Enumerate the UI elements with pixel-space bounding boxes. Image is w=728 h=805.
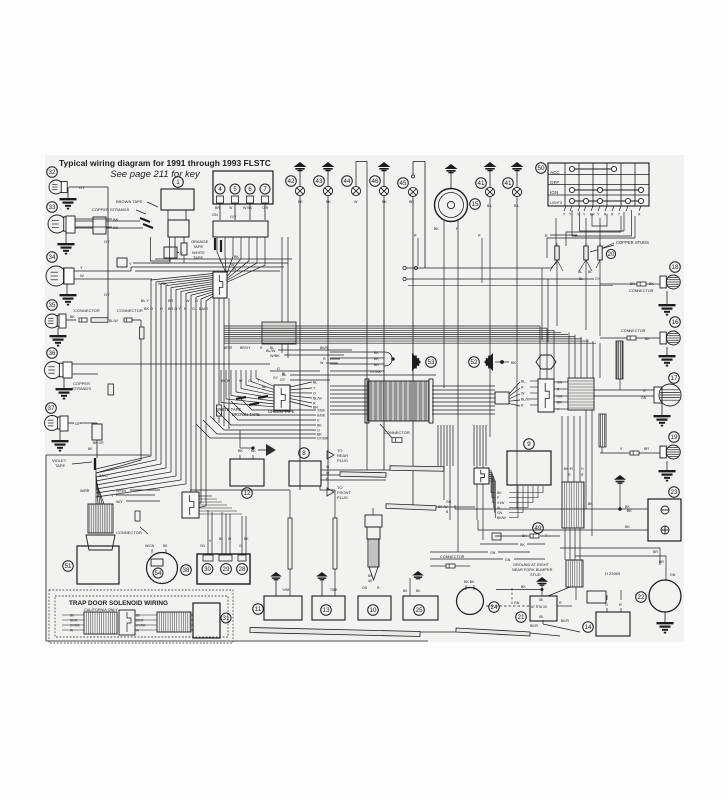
svg-text:PLUG: PLUG [337, 495, 348, 500]
svg-text:BK: BK [374, 357, 379, 361]
svg-text:44: 44 [344, 178, 351, 185]
svg-text:BK BK: BK BK [464, 580, 475, 584]
svg-text:W: W [326, 465, 330, 469]
svg-text:GN: GN [505, 558, 511, 562]
svg-text:1: 1 [176, 179, 180, 186]
svg-text:CONNECTOR: CONNECTOR [440, 555, 465, 559]
svg-text:BK: BK [238, 449, 243, 453]
svg-text:16: 16 [672, 319, 679, 326]
svg-text:W: W [186, 299, 190, 303]
svg-text:O: O [581, 467, 584, 471]
svg-text:GN: GN [641, 396, 647, 400]
svg-text:BR: BR [215, 206, 220, 210]
svg-text:BL: BL [282, 372, 286, 376]
svg-text:BL: BL [578, 270, 582, 274]
svg-text:STUD: STUD [530, 572, 541, 577]
svg-text:STRANDS: STRANDS [72, 386, 91, 391]
svg-text:R: R [184, 307, 187, 311]
svg-text:W/BR: W/BR [80, 489, 90, 493]
svg-text:19: 19 [671, 434, 678, 441]
svg-text:GY: GY [273, 376, 279, 380]
svg-text:O: O [195, 299, 198, 303]
svg-text:BA/R: BA/R [199, 307, 208, 311]
svg-text:BR: BR [644, 447, 649, 451]
svg-text:GN: GN [497, 511, 503, 515]
svg-text:R: R [521, 386, 524, 390]
svg-text:O R: O R [262, 206, 269, 210]
svg-text:BR O Y: BR O Y [168, 307, 181, 311]
svg-text:BK: BK [645, 337, 650, 341]
svg-text:BR: BR [409, 200, 414, 204]
svg-text:O: O [313, 392, 316, 396]
svg-text:O: O [277, 367, 280, 371]
svg-text:86: 86 [539, 615, 543, 619]
svg-text:O: O [248, 379, 251, 383]
svg-text:CALIFORNIA ONLY: CALIFORNIA ONLY [84, 608, 118, 612]
svg-text:Y/BK: Y/BK [282, 588, 290, 592]
svg-text:TRAP DOOR SOLENOID WIRING: TRAP DOOR SOLENOID WIRING [69, 600, 168, 607]
svg-text:12: 12 [244, 490, 251, 497]
svg-text:54: 54 [155, 570, 162, 577]
svg-text:O: O [605, 603, 608, 607]
svg-text:BK: BK [88, 447, 93, 451]
svg-text:GN: GN [670, 573, 676, 577]
svg-text:R: R [575, 234, 578, 238]
svg-text:85: 85 [539, 598, 543, 602]
svg-text:W: W [233, 267, 237, 271]
svg-text:GN: GN [200, 544, 205, 548]
svg-text:K/BK: K/BK [317, 414, 326, 418]
svg-text:35: 35 [49, 302, 56, 309]
svg-text:BK: BK [326, 200, 331, 204]
svg-text:46: 46 [372, 178, 379, 185]
svg-text:BK: BK [70, 315, 75, 319]
svg-text:BL: BL [588, 270, 592, 274]
svg-text:Typical wiring diagram for 199: Typical wiring diagram for 1991 through … [59, 158, 271, 168]
svg-text:COPPER STUDS: COPPER STUDS [616, 240, 649, 245]
svg-text:BR/R: BR/R [224, 346, 233, 350]
svg-text:BK: BK [434, 227, 439, 231]
svg-text:37: 37 [48, 405, 55, 412]
svg-text:CONNECTOR: CONNECTOR [74, 308, 100, 313]
svg-text:GN: GN [557, 381, 563, 385]
svg-text:24: 24 [491, 604, 498, 611]
svg-text:50: 50 [538, 165, 545, 172]
svg-text:BL/W: BL/W [109, 319, 118, 323]
svg-text:R: R [521, 404, 524, 408]
svg-text:W: W [521, 392, 525, 396]
svg-text:GN: GN [212, 213, 218, 217]
svg-text:R: R [323, 357, 326, 361]
svg-text:10: 10 [370, 607, 377, 614]
svg-text:W/BK: W/BK [270, 354, 280, 358]
svg-text:T/BK: T/BK [317, 409, 326, 413]
svg-text:R: R [559, 601, 562, 605]
svg-text:GY: GY [104, 239, 110, 244]
svg-text:42: 42 [288, 178, 295, 185]
svg-text:GY: GY [79, 185, 85, 190]
svg-text:11: 11 [255, 606, 262, 613]
svg-text:GY/BK: GY/BK [317, 437, 329, 441]
svg-text:O: O [192, 307, 195, 311]
svg-text:BK: BK [403, 589, 408, 593]
svg-text:BA/O: BA/O [99, 474, 108, 478]
svg-text:15: 15 [472, 201, 479, 208]
svg-text:30: 30 [204, 566, 211, 573]
svg-text:R: R [414, 234, 417, 238]
svg-text:38: 38 [183, 567, 190, 574]
svg-text:GP: GP [75, 421, 81, 426]
svg-text:BK: BK [588, 502, 593, 506]
svg-text:20: 20 [608, 251, 615, 258]
svg-text:BK: BK [317, 424, 322, 428]
svg-text:W BK: W BK [243, 206, 253, 210]
svg-text:See page 211 for key: See page 211 for key [110, 169, 201, 180]
svg-text:BL Y: BL Y [141, 299, 149, 303]
svg-text:BK/R: BK/R [561, 619, 569, 623]
svg-text:17: 17 [671, 375, 678, 382]
svg-text:45: 45 [400, 180, 407, 187]
svg-text:T: T [563, 213, 565, 217]
svg-text:51: 51 [65, 563, 72, 570]
svg-text:BK: BK [497, 491, 502, 495]
svg-text:BR: BR [557, 401, 562, 405]
svg-text:BL: BL [219, 537, 223, 541]
svg-text:/W: /W [368, 579, 372, 583]
svg-text:36: 36 [49, 350, 56, 357]
svg-text:BK/W: BK/W [497, 516, 506, 520]
svg-text:R: R [478, 234, 481, 238]
svg-text:BK: BK [416, 589, 421, 593]
svg-text:BR/GY: BR/GY [240, 346, 251, 350]
svg-text:BR: BR [590, 213, 595, 217]
svg-text:GY: GY [280, 378, 286, 382]
svg-text:H 23969: H 23969 [605, 571, 621, 576]
svg-text:W/Y: W/Y [116, 500, 123, 504]
svg-text:TAPE: TAPE [55, 463, 65, 468]
svg-text:CONNECTOR: CONNECTOR [117, 308, 143, 313]
svg-text:BK: BK [163, 544, 168, 548]
svg-text:BK: BK [625, 525, 630, 529]
svg-text:W/GN: W/GN [145, 544, 155, 548]
svg-text:R: R [643, 389, 646, 393]
svg-text:GN: GN [557, 395, 563, 399]
svg-text:W: W [229, 206, 233, 210]
svg-text:22: 22 [638, 594, 645, 601]
svg-text:BROWN TAPE: BROWN TAPE [116, 199, 143, 204]
svg-text:T/BK: T/BK [330, 588, 338, 592]
svg-text:GN: GN [514, 601, 520, 605]
svg-text:BK: BK [234, 255, 239, 259]
svg-text:CONNECTOR: CONNECTOR [629, 289, 654, 293]
svg-text:23: 23 [671, 489, 678, 496]
svg-text:V1W: V1W [497, 501, 505, 505]
svg-text:BL: BL [313, 381, 317, 385]
svg-text:9: 9 [527, 441, 531, 448]
svg-text:33: 33 [49, 204, 56, 211]
svg-text:W: W [354, 200, 358, 204]
svg-text:IGN: IGN [550, 190, 558, 195]
svg-text:43: 43 [316, 178, 323, 185]
svg-text:BK GR: BK GR [93, 441, 104, 445]
svg-text:GY: GY [104, 292, 110, 297]
svg-text:34: 34 [49, 254, 56, 261]
svg-text:53: 53 [428, 359, 435, 366]
svg-text:O: O [160, 307, 163, 311]
svg-text:PLUG: PLUG [337, 458, 348, 463]
svg-text:BK: BK [244, 537, 249, 541]
svg-text:TAPE: TAPE [193, 244, 203, 249]
svg-text:BK: BK [520, 543, 525, 547]
svg-text:R: R [545, 234, 548, 238]
svg-text:GN: GN [490, 551, 496, 555]
svg-text:BK: BK [113, 225, 119, 230]
svg-text:W: W [80, 273, 84, 278]
svg-text:BL/W: BL/W [313, 397, 322, 401]
svg-text:GY/BK: GY/BK [370, 370, 382, 374]
svg-text:25: 25 [416, 607, 423, 614]
svg-text:W: W [320, 361, 324, 365]
svg-text:BK /R: BK /R [564, 467, 573, 471]
svg-text:21: 21 [518, 614, 525, 621]
svg-text:GN: GN [362, 586, 368, 590]
svg-text:49: 49 [535, 525, 542, 532]
svg-text:CONNECTOR: CONNECTOR [116, 530, 142, 535]
svg-text:29: 29 [223, 566, 230, 573]
svg-text:13: 13 [323, 607, 330, 614]
svg-text:Y: Y [129, 261, 132, 266]
svg-text:CONNECTOR: CONNECTOR [384, 430, 410, 435]
svg-text:31: 31 [223, 615, 230, 622]
svg-text:BK: BK [382, 200, 387, 204]
svg-text:BL: BL [521, 380, 525, 384]
svg-text:BL/W: BL/W [266, 349, 276, 353]
svg-text:28: 28 [239, 566, 246, 573]
svg-text:CONNECTOR: CONNECTOR [621, 329, 646, 333]
svg-text:BK: BK [511, 361, 517, 365]
svg-text:Y: Y [80, 265, 83, 270]
svg-text:T: T [569, 213, 571, 217]
svg-text:R: R [619, 603, 622, 607]
svg-text:87 RTA 30: 87 RTA 30 [531, 605, 547, 609]
svg-text:G/Y: G/Y [230, 215, 237, 219]
svg-text:BK: BK [298, 200, 303, 204]
svg-text:BR: BR [374, 363, 379, 367]
svg-text:BR: BR [653, 550, 658, 554]
svg-text:41: 41 [505, 180, 512, 187]
svg-text:BK: BK [374, 351, 379, 355]
svg-text:52: 52 [471, 359, 478, 366]
svg-text:BK: BK [521, 585, 526, 589]
svg-text:BK O: BK O [144, 307, 153, 311]
svg-text:GN: GN [446, 500, 452, 504]
svg-text:BK/R: BK/R [320, 346, 328, 350]
svg-text:BK: BK [251, 449, 256, 453]
svg-text:COPPER STRANDS: COPPER STRANDS [92, 207, 129, 212]
svg-text:W/GN: W/GN [116, 489, 126, 493]
svg-text:BK: BK [625, 505, 630, 509]
svg-text:18: 18 [672, 264, 679, 271]
svg-text:LIGHTS: LIGHTS [550, 201, 563, 205]
svg-text:14: 14 [585, 624, 592, 631]
svg-text:41: 41 [478, 180, 485, 187]
svg-text:BL/W: BL/W [521, 398, 530, 402]
svg-text:W: W [326, 471, 330, 475]
svg-text:BROWN TAPE: BROWN TAPE [232, 412, 260, 417]
svg-text:8: 8 [302, 450, 306, 457]
svg-text:BK: BK [627, 509, 632, 513]
svg-text:32: 32 [49, 169, 56, 176]
svg-text:T: T [618, 213, 620, 217]
svg-text:BK/R: BK/R [530, 624, 538, 628]
